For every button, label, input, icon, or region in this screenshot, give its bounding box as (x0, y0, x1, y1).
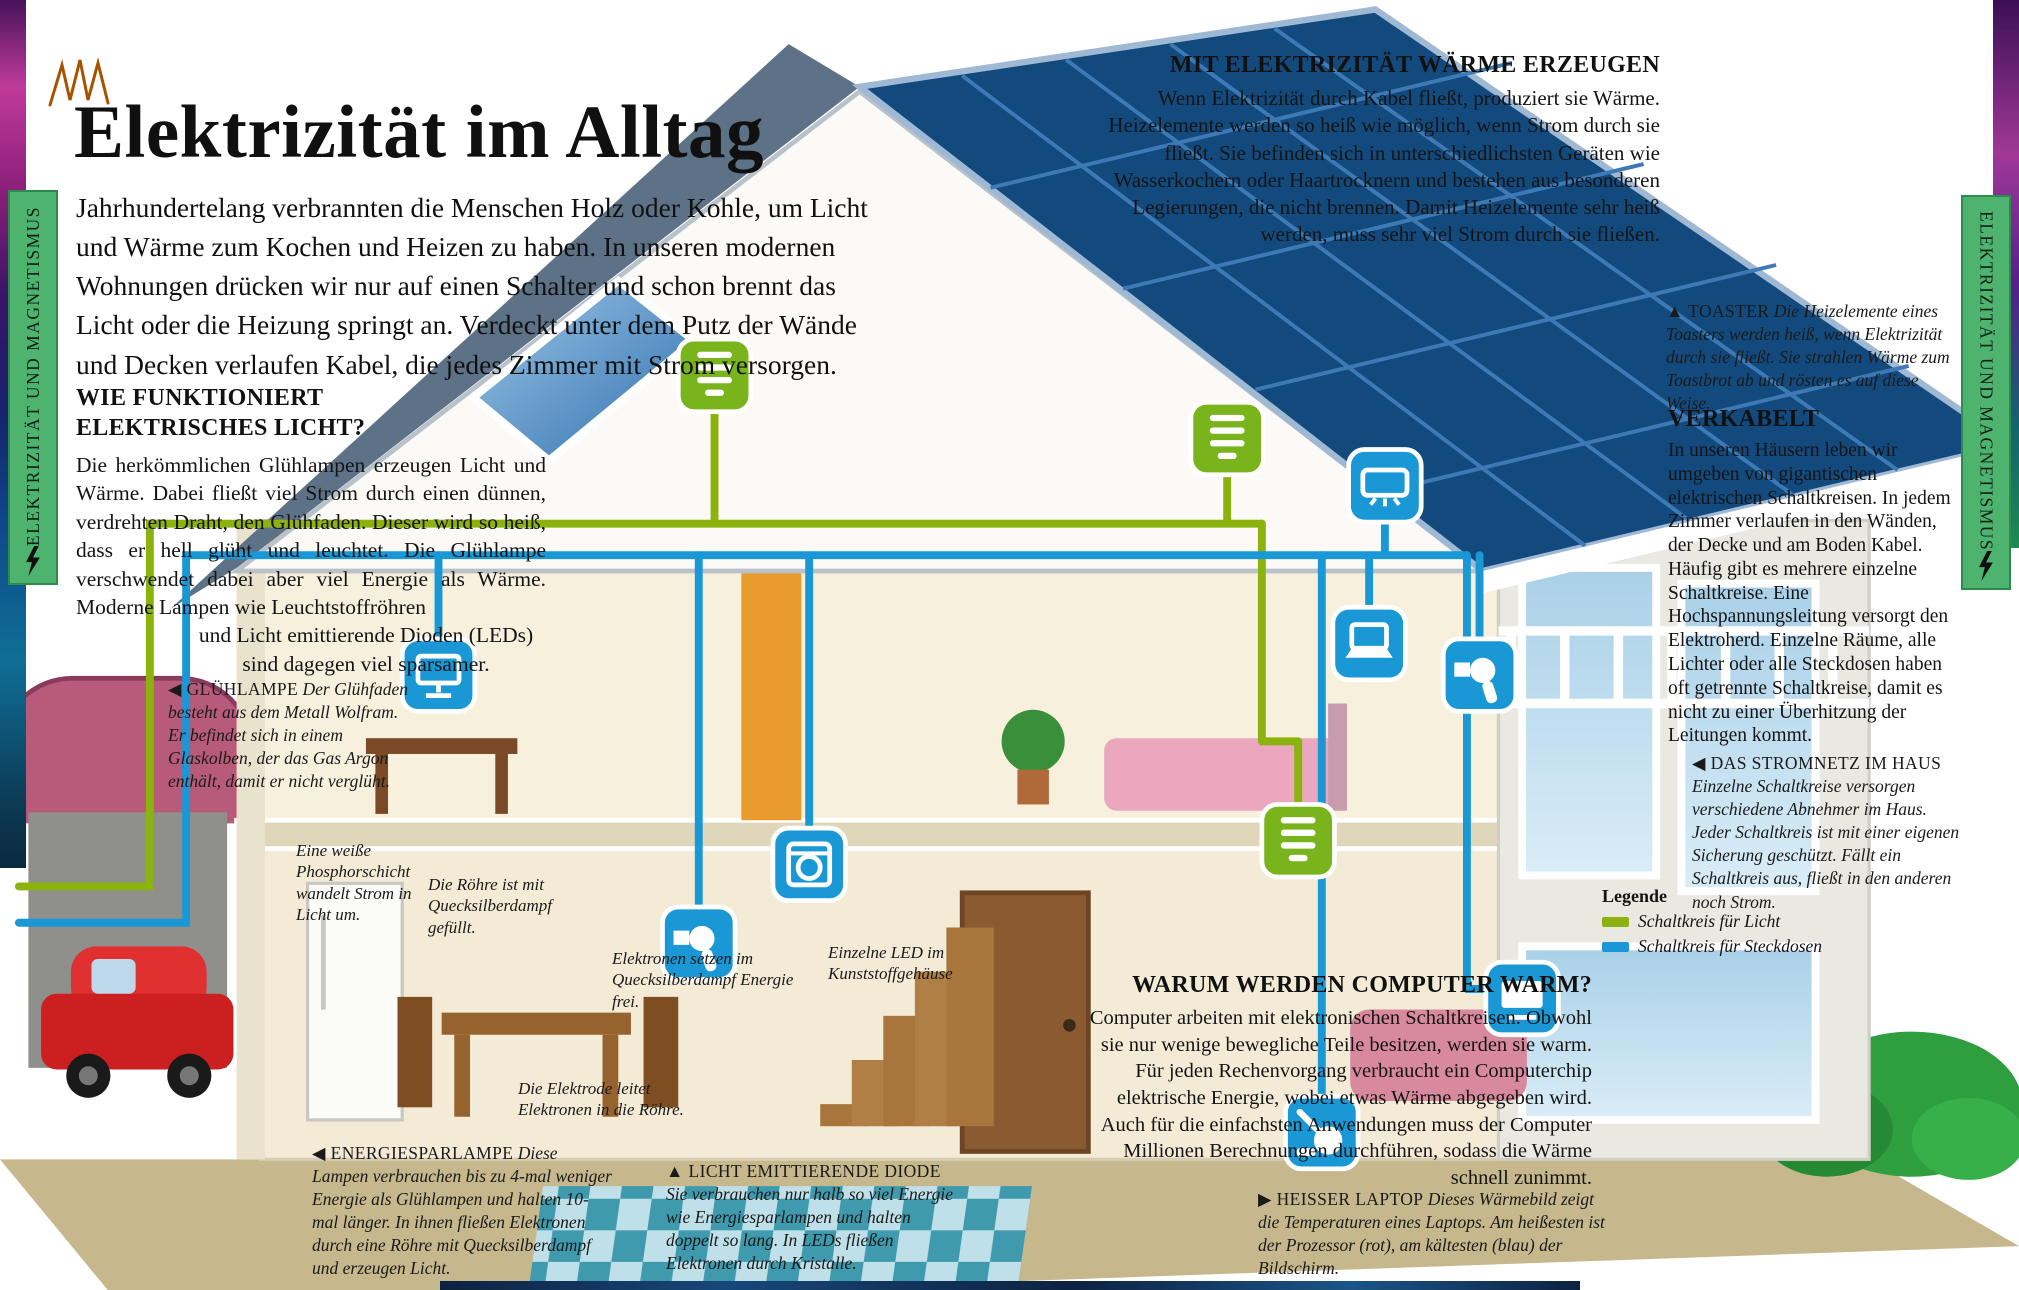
section-electric-light: WIE FUNKTIONIERT ELEKTRISCHES LICHT? Die… (76, 383, 546, 678)
chapter-tab-label: ELEKTRIZITÄT UND MAGNETISMUS (23, 206, 44, 546)
legend-swatch-light (1602, 917, 1629, 927)
lightning-bolt-icon (1976, 551, 1996, 581)
section-body: Die herkömmlichen Glühlampen erzeugen Li… (76, 451, 546, 621)
section-heat: MIT ELEKTRIZITÄT WÄRME ERZEUGEN Wenn Ele… (1100, 52, 1660, 249)
caption-led: ▲ LICHT EMITTIERENDE DIODE Sie verbrauch… (666, 1160, 966, 1275)
legend-title: Legende (1602, 886, 1862, 907)
chapter-tab-right: ELEKTRIZITÄT UND MAGNETISMUS (1961, 195, 2011, 590)
label-single-led: Einzelne LED im Kunststoffgehäuse (828, 942, 1008, 985)
label-electrode: Die Elektrode leitet Elektronen in die R… (518, 1078, 728, 1121)
badge-light-cfl-icon (1191, 402, 1264, 475)
section-heading: WIE FUNKTIONIERT ELEKTRISCHES LICHT? (76, 383, 546, 443)
caption-gluehlampe: ◀ GLÜHLAMPE Der Glühfaden besteht aus de… (168, 678, 408, 793)
circuit-legend: Legende Schaltkreis für Licht Schaltkrei… (1602, 886, 1862, 957)
toaster-photo (1668, 45, 1948, 290)
label-tube: Die Röhre ist mit Quecksilberdampf gefül… (428, 874, 593, 938)
bottom-photo-strip (440, 1281, 1580, 1290)
legend-item-light: Schaltkreis für Licht (1602, 911, 1862, 932)
legend-item-sockets: Schaltkreis für Steckdosen (1602, 936, 1862, 957)
section-verkabelt: VERKABELT In unseren Häusern leben wir u… (1668, 406, 1960, 748)
lightning-bolt-icon (23, 546, 43, 576)
intro-paragraph: Jahrhundertelang verbrannten die Mensche… (76, 188, 876, 385)
orange-pillar (741, 544, 801, 820)
page-title: Elektrizität im Alltag (74, 90, 764, 176)
label-electrons: Elektronen setzen im Quecksilberdampf En… (612, 948, 797, 1012)
book-spread: ELEKTRIZITÄT UND MAGNETISMUS ELEKTRIZITÄ… (0, 0, 2019, 1290)
badge-hair-dryer-icon (1443, 639, 1516, 712)
badge-laptop-icon (1333, 607, 1406, 680)
badge-air-conditioner-icon (1349, 450, 1422, 523)
badge-light-cfl-icon (1262, 804, 1335, 877)
bulb-filament (40, 45, 120, 115)
chapter-tab-label: ELEKTRIZITÄT UND MAGNETISMUS (1976, 211, 1997, 551)
legend-swatch-sockets (1602, 942, 1629, 952)
section-body-continued: und Licht emittierende Dioden (LEDs) sin… (76, 621, 546, 678)
section-computer: WARUM WERDEN COMPUTER WARM? Computer arb… (1080, 972, 1592, 1191)
badge-washing-machine-icon (773, 828, 846, 901)
label-phosphor: Eine weiße Phosphorschicht wandelt Strom… (296, 840, 436, 925)
caption-toaster: ▲ TOASTER Die Heizelemente eines Toaster… (1666, 300, 1958, 415)
caption-energiesparlampe: ◀ ENERGIESPARLAMPE Diese Lampen verbrauc… (312, 1142, 614, 1281)
caption-heisser-laptop: ▶ HEISSER LAPTOP Dieses Wärmebild zeigt … (1258, 1188, 1618, 1280)
chapter-tab-left: ELEKTRIZITÄT UND MAGNETISMUS (8, 190, 58, 585)
